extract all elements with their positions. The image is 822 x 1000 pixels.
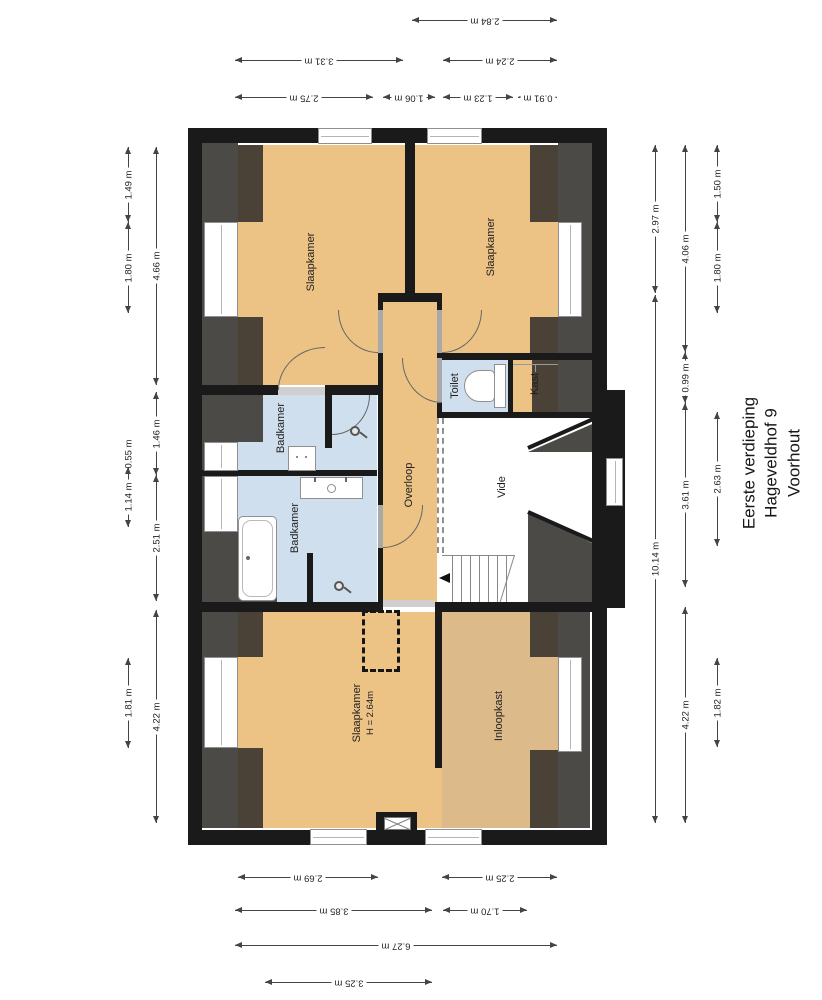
wall-vide-bottom <box>435 602 607 612</box>
room-label-slaapkamer-top-right: Slaapkamer <box>485 218 499 277</box>
dimension: 2.25 m <box>442 873 557 882</box>
dimension-arrow <box>652 286 658 293</box>
dimension-arrow <box>371 874 378 880</box>
dimension-arrow <box>412 17 419 23</box>
dimension-arrow <box>682 145 688 152</box>
dimension-label: 1.06 m <box>391 92 426 103</box>
dimension-arrow <box>383 94 390 100</box>
dimension-arrow <box>714 740 720 747</box>
dimension-label: 1.82 m <box>712 685 723 720</box>
dimension-label: 3.31 m <box>301 55 336 66</box>
dimension: 1.06 m <box>383 93 435 102</box>
dimension: 1.49 m <box>124 147 133 222</box>
wall-vide-top <box>437 412 606 418</box>
dimension-arrow <box>714 412 720 419</box>
dimension-arrow <box>714 539 720 546</box>
dimension-label: 1.80 m <box>712 250 723 285</box>
toilet-bowl <box>464 370 495 402</box>
dimension-arrow <box>235 942 242 948</box>
dimension-label: 2.75 m <box>286 92 321 103</box>
window <box>204 657 238 748</box>
toilet-tank <box>494 364 506 408</box>
dimension: 2.97 m <box>651 145 660 293</box>
dimension-arrow <box>153 147 159 154</box>
dimension-arrow <box>682 580 688 587</box>
dimension-label: 4.66 m <box>151 248 162 283</box>
wall-shower <box>307 553 313 602</box>
slope-overlay <box>530 317 558 353</box>
dimension-arrow <box>714 658 720 665</box>
dashed-zone <box>362 610 400 672</box>
dimension-arrow <box>235 907 242 913</box>
slope-overlay <box>530 145 558 222</box>
dimension: 1.80 m <box>713 222 722 313</box>
dimension-arrow <box>550 942 557 948</box>
dimension-arrow <box>125 741 131 748</box>
window <box>204 442 238 471</box>
wall-overloop-right <box>437 302 442 310</box>
door-sill <box>383 600 435 607</box>
dimension: 1.81 m <box>124 658 133 748</box>
bathtub-drain <box>246 556 250 560</box>
stair-tread <box>497 555 498 602</box>
dimension: 3.61 m <box>681 403 690 587</box>
dimension: 3.31 m <box>235 56 403 65</box>
dimension-arrow <box>265 979 272 985</box>
sink <box>288 446 316 471</box>
dimension-arrow <box>125 658 131 665</box>
dimension: 4.06 m <box>681 145 690 352</box>
dimension-arrow <box>153 468 159 475</box>
dimension-arrow <box>682 352 688 359</box>
window <box>558 222 582 317</box>
dimension: 0.55 m <box>124 440 133 467</box>
wall-slaapkamer-toilet <box>437 353 606 360</box>
dimension-arrow <box>714 215 720 222</box>
room-label-slaapkamer-bottom: SlaapkamerH = 2.64m <box>351 684 377 743</box>
dimension-arrow <box>125 147 131 154</box>
dimension-arrow <box>153 594 159 601</box>
dimension-label: 0.91 m <box>520 92 555 103</box>
exterior-wall-top <box>188 128 607 143</box>
window <box>318 128 372 144</box>
dimension: 1.23 m <box>443 93 513 102</box>
dimension-arrow <box>235 57 242 63</box>
dimension-arrow <box>682 345 688 352</box>
closet-rail-tick <box>535 364 536 372</box>
dimension: 2.63 m <box>713 412 722 546</box>
dimension-arrow <box>550 17 557 23</box>
room-label-badkamer-large: Badkamer <box>289 503 303 553</box>
dimension: 3.85 m <box>235 906 432 915</box>
dimension: 2.84 m <box>412 16 557 25</box>
dimension-label: 2.24 m <box>482 55 517 66</box>
dimension-label: 1.46 m <box>151 416 162 451</box>
floor-slaapkamer-bottom <box>238 612 435 828</box>
dimension-label: 2.84 m <box>467 15 502 26</box>
dimension-label: 1.14 m <box>123 479 134 514</box>
room-label-overloop: Overloop <box>403 463 417 508</box>
dimension: 2.51 m <box>152 475 161 601</box>
dimension-label: 1.49 m <box>123 167 134 202</box>
stair-tread <box>479 555 480 602</box>
stair-tread <box>488 555 489 602</box>
dimension-arrow <box>125 520 131 527</box>
dimension-label: 4.06 m <box>680 231 691 266</box>
slope-overlay <box>238 317 263 385</box>
dimension-label: 0.99 m <box>680 360 691 395</box>
wall-overloop-left <box>378 293 383 310</box>
plan-title-line: Hageveldhof 9 <box>761 397 783 529</box>
dimension-label: 2.25 m <box>482 872 517 883</box>
dimension: 1.46 m <box>152 392 161 475</box>
dimension-label: 1.23 m <box>460 92 495 103</box>
dimension: 2.69 m <box>238 873 378 882</box>
dimension-arrow <box>652 145 658 152</box>
dimension: 4.66 m <box>152 147 161 385</box>
window <box>427 128 482 144</box>
dimension-arrow <box>443 57 450 63</box>
dimension-label: 3.85 m <box>316 905 351 916</box>
plan-title-line: Eerste verdieping <box>738 397 760 529</box>
dimension-arrow <box>153 392 159 399</box>
dimension-arrow <box>506 94 513 100</box>
floor-passage <box>435 768 442 828</box>
room-label-badkamer-small: Badkamer <box>275 403 289 453</box>
dimension: 1.80 m <box>124 222 133 313</box>
dimension: 0.99 m <box>681 352 690 403</box>
dimension-label: 3.25 m <box>331 977 366 988</box>
dimension-arrow <box>428 94 435 100</box>
exterior-wall-right <box>592 128 607 845</box>
stair-tread <box>452 555 453 602</box>
dimension: 2.24 m <box>443 56 557 65</box>
dimension-arrow <box>652 816 658 823</box>
room-label-toilet: Toilet <box>449 373 463 399</box>
wall-overloop-right <box>437 403 442 412</box>
sink-drain <box>296 456 298 458</box>
wall-overloop-left <box>378 548 383 607</box>
dimension-label: 2.51 m <box>151 520 162 555</box>
stair-tread <box>461 555 462 602</box>
dimension-arrow <box>443 94 450 100</box>
dimension-label: 0.55 m <box>123 436 134 471</box>
window <box>558 657 582 752</box>
dimension-arrow <box>153 816 159 823</box>
dimension-arrow <box>682 403 688 410</box>
dimension-arrow <box>425 979 432 985</box>
dimension-arrow <box>153 610 159 617</box>
dimension-arrow <box>366 94 373 100</box>
sink-drain <box>305 456 307 458</box>
dimension-arrow <box>714 222 720 229</box>
dimension-label: 4.22 m <box>680 697 691 732</box>
dimension-label: 1.70 m <box>467 905 502 916</box>
dimension: 1.50 m <box>713 145 722 222</box>
dimension-arrow <box>396 57 403 63</box>
slope-overlay <box>238 145 263 222</box>
dimension: 1.82 m <box>713 658 722 747</box>
dimension-arrow <box>125 215 131 222</box>
dimension-label: 1.81 m <box>123 685 134 720</box>
dimension-label: 1.80 m <box>123 250 134 285</box>
room-label-vide: Vide <box>496 476 510 498</box>
vanity-faucet <box>345 477 347 482</box>
wall-toilet-kast <box>508 360 513 418</box>
wall-overloop-left <box>378 353 383 505</box>
room-label-inloopkast: Inloopkast <box>493 691 507 741</box>
dimension-arrow <box>153 378 159 385</box>
dimension: 2.75 m <box>235 93 373 102</box>
dimension: 1.70 m <box>443 906 527 915</box>
wall-bottom-rooms-top <box>202 602 383 612</box>
dimension-label: 2.63 m <box>712 461 723 496</box>
wall-bedroom-divider <box>405 143 415 302</box>
dimension-label: 6.27 m <box>378 940 413 951</box>
floorplan-page: Eerste verdieping Hageveldhof 9 Voorhout… <box>0 0 822 1000</box>
floor-slaapkamer-top-left <box>238 145 405 293</box>
window <box>204 476 238 532</box>
vide-railing <box>437 418 444 553</box>
plan-title-line: Voorhout <box>783 397 805 529</box>
dimension-arrow <box>682 396 688 403</box>
dimension: 3.25 m <box>265 978 432 987</box>
dimension-arrow <box>443 907 450 913</box>
window <box>310 829 367 845</box>
dimension-label: 3.61 m <box>680 477 691 512</box>
dimension-arrow <box>442 874 449 880</box>
slope-overlay <box>530 612 558 657</box>
dimension-arrow <box>652 295 658 302</box>
stair-tread <box>470 555 471 602</box>
dimension-arrow <box>550 57 557 63</box>
dimension-arrow <box>125 222 131 229</box>
dimension: 4.22 m <box>681 607 690 823</box>
shower-head-icon <box>350 426 360 436</box>
room-label-slaapkamer-top-left: Slaapkamer <box>305 233 319 292</box>
dimension-arrow <box>714 306 720 313</box>
dimension-arrow <box>153 475 159 482</box>
wall-overloop-top <box>383 293 442 302</box>
dimension: 10.14 m <box>651 295 660 823</box>
vanity-basin <box>327 484 336 493</box>
roof-band-right-mid <box>558 358 592 418</box>
window <box>425 829 482 845</box>
dimension-arrow <box>238 874 245 880</box>
dimension: 4.22 m <box>152 610 161 823</box>
exterior-wall-left <box>188 128 202 845</box>
dimension: 0.91 m <box>518 93 557 102</box>
dimension-label: 2.97 m <box>650 201 661 236</box>
slope-overlay <box>238 612 263 657</box>
dimension-arrow <box>235 94 242 100</box>
dimension: 1.14 m <box>124 467 133 527</box>
dimension-arrow <box>125 467 131 474</box>
dimension-label: 1.50 m <box>712 166 723 201</box>
dimension-arrow <box>125 306 131 313</box>
wall-slaapkamer-badkamer <box>325 385 383 395</box>
floor-overloop <box>383 302 437 607</box>
dimension-label: 4.22 m <box>151 699 162 734</box>
dimension-arrow <box>682 607 688 614</box>
window <box>204 222 238 317</box>
dimension-label: 2.69 m <box>290 872 325 883</box>
door-leaf <box>378 310 383 353</box>
dimension-arrow <box>714 145 720 152</box>
wall-badkamer-internal <box>325 395 332 448</box>
vanity-faucet <box>314 477 316 482</box>
dimension: 6.27 m <box>235 941 557 950</box>
dimension-arrow <box>425 907 432 913</box>
dimension-arrow <box>682 816 688 823</box>
wall-inloopkast-divider <box>435 612 442 768</box>
slope-overlay <box>530 750 558 828</box>
window-dormer <box>606 458 623 506</box>
dimension-arrow <box>550 874 557 880</box>
room-label-kast: Kast <box>529 373 543 395</box>
plan-title: Eerste verdieping Hageveldhof 9 Voorhout <box>738 397 805 529</box>
shower-head-icon <box>334 581 344 591</box>
slope-block-badkamer <box>202 395 263 442</box>
slope-overlay <box>238 748 263 828</box>
stairs-direction-arrow-icon <box>439 573 450 583</box>
dimension-arrow <box>520 907 527 913</box>
wall-slaapkamer-badkamer <box>202 385 278 395</box>
dimension-label: 10.14 m <box>650 539 661 579</box>
